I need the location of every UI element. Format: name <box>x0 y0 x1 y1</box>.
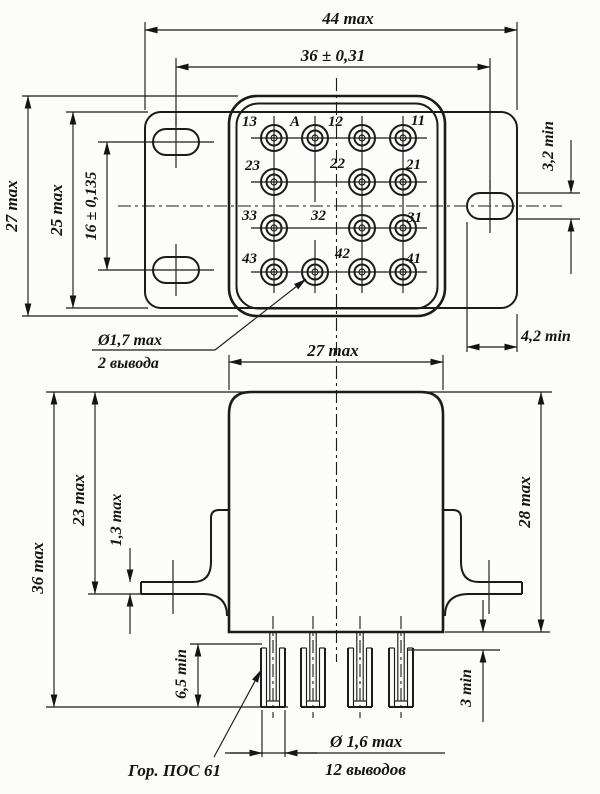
dim-overall-height: 36 max <box>28 392 54 707</box>
dim-body-width: 27 max <box>229 341 443 390</box>
dim-slot-width-label: 3,2 min <box>540 121 557 172</box>
dim-hole-pitch-label: 16 ± 0,135 <box>83 172 100 241</box>
dim-body-height: 28 max <box>445 392 550 632</box>
dim-pin-clearance: 3 min <box>408 600 500 722</box>
callout-small-pins-diameter: Ø 1,6 max <box>329 732 403 751</box>
pin-label-31: 31 <box>406 210 422 226</box>
dim-top-to-foot: 23 max <box>69 392 142 594</box>
dim-hole-pitch: 16 ± 0,135 <box>83 142 107 270</box>
dim-slot-width: 3,2 min <box>516 121 580 274</box>
dim-body-depth-label: 27 max <box>2 180 21 233</box>
callout-large-pins-count: 2 вывода <box>97 355 159 372</box>
dim-hole-span-label: 36 ± 0,31 <box>300 46 366 65</box>
dim-flange-height-label: 25 max <box>47 184 66 237</box>
left-mounting-bracket <box>141 510 228 616</box>
pin-label-41: 41 <box>405 251 421 267</box>
callout-solder-coating-label: Гор. ПОС 61 <box>127 761 221 780</box>
dim-body-height-label: 28 max <box>515 476 534 529</box>
callout-solder-coating: Гор. ПОС 61 <box>127 670 261 780</box>
relay-engineering-drawing: 13 A 12 11 23 22 21 33 32 31 43 42 41 44… <box>0 0 600 794</box>
side-view: 27 max 36 max 23 max 1,3 max 28 max <box>28 341 552 780</box>
pin-label-33: 33 <box>241 208 258 224</box>
pin-label-21: 21 <box>405 157 421 173</box>
dim-foot-thickness: 1,3 max <box>108 494 130 634</box>
dim-overall-width-label: 44 max <box>321 9 374 28</box>
callout-small-pins-count: 12 выводов <box>325 760 406 779</box>
dim-body-width-label: 27 max <box>306 341 359 360</box>
dim-slot-edge-margin-label: 4,2 min <box>520 328 571 345</box>
dim-slot-edge-margin: 4,2 min <box>467 222 571 352</box>
pin-label-42: 42 <box>334 246 351 262</box>
pin-label-22: 22 <box>329 156 346 172</box>
pin-label-12: 12 <box>328 114 344 130</box>
dim-foot-thickness-label: 1,3 max <box>108 494 125 546</box>
dim-solder-length: 6,5 min <box>46 644 288 707</box>
pin-label-32: 32 <box>310 208 327 224</box>
pin-label-23: 23 <box>244 158 261 174</box>
mounting-flange-outline <box>145 112 517 308</box>
pin-label-43: 43 <box>241 251 258 267</box>
pin-labels: 13 A 12 11 23 22 21 33 32 31 43 42 41 <box>241 113 425 267</box>
dim-solder-length-label: 6,5 min <box>173 649 190 699</box>
top-view: 13 A 12 11 23 22 21 33 32 31 43 42 41 44… <box>2 9 580 662</box>
pin-label-11: 11 <box>411 113 425 129</box>
callout-small-pins: Ø 1,6 max 12 выводов <box>225 710 445 779</box>
dim-pin-clearance-label: 3 min <box>458 669 475 708</box>
dim-top-to-foot-label: 23 max <box>69 474 88 527</box>
pin-label-13: 13 <box>242 114 258 130</box>
dim-overall-height-label: 36 max <box>28 542 47 595</box>
callout-large-pins-diameter: Ø1,7 max <box>97 332 162 349</box>
drawing-sheet: 13 A 12 11 23 22 21 33 32 31 43 42 41 44… <box>0 0 600 794</box>
pin-label-A: A <box>289 114 300 130</box>
